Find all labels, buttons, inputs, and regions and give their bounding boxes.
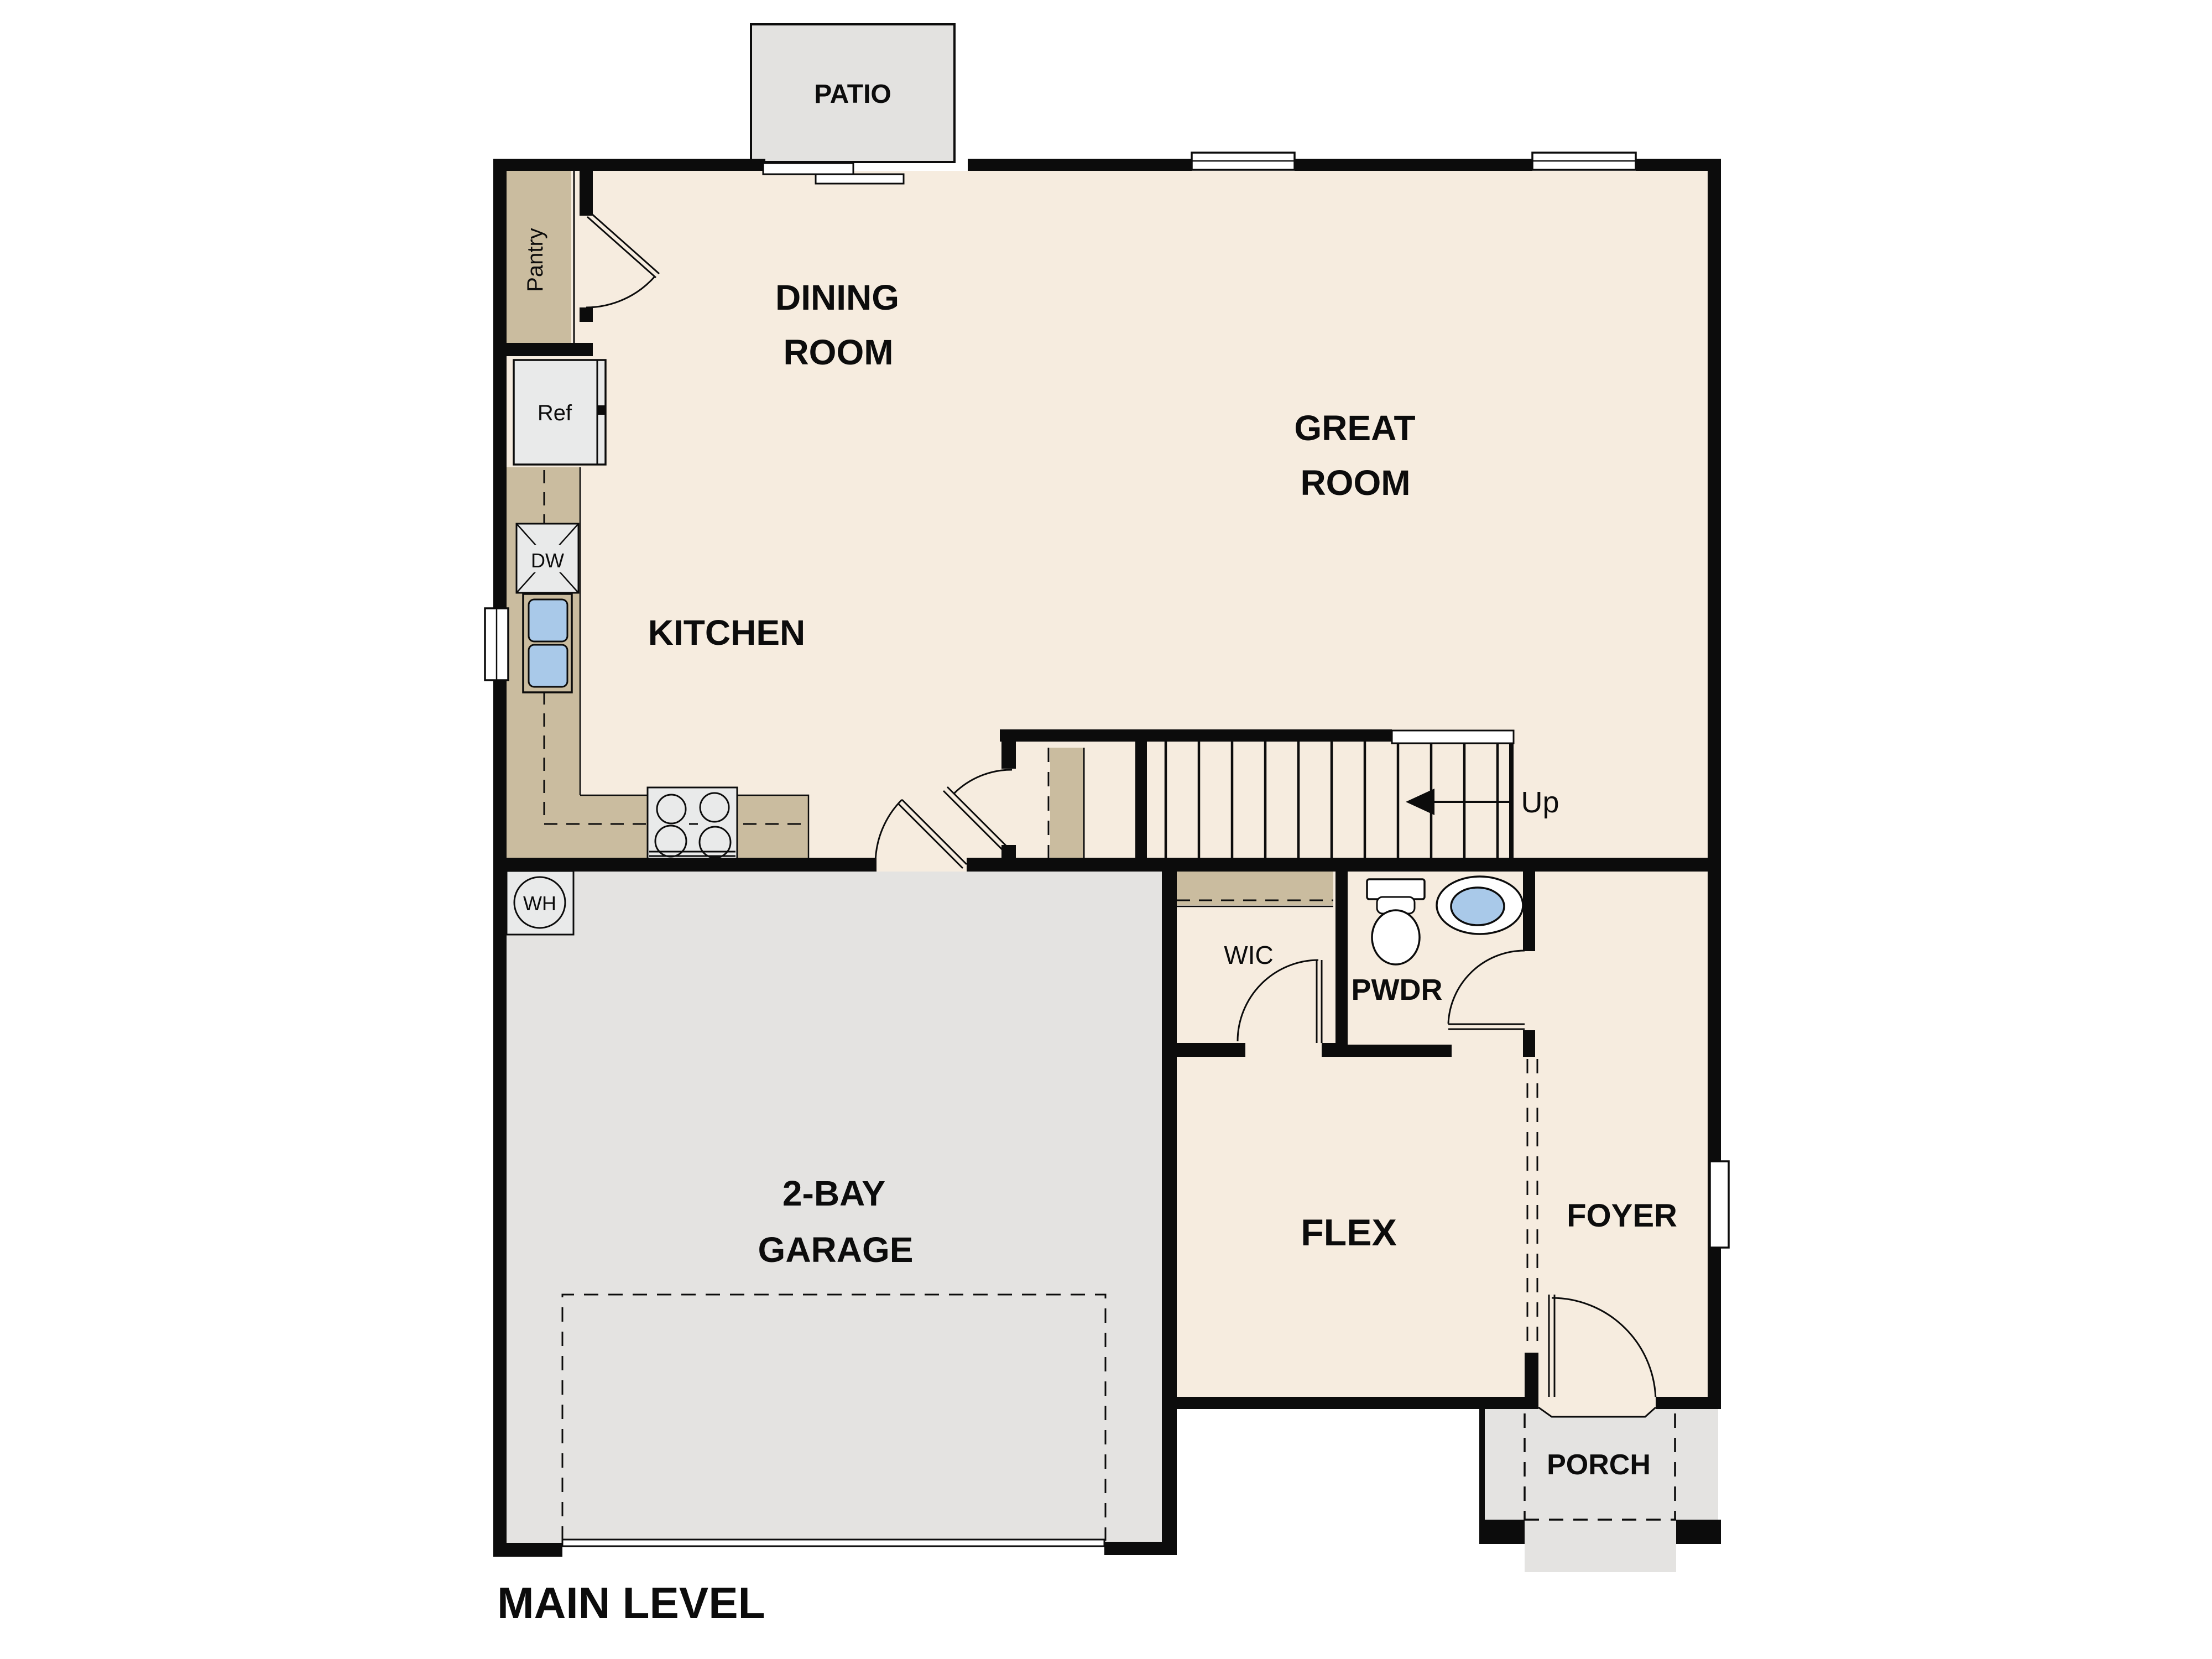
svg-text:2-BAY: 2-BAY bbox=[782, 1173, 885, 1213]
svg-text:WIC: WIC bbox=[1224, 941, 1273, 969]
svg-text:PATIO: PATIO bbox=[814, 80, 891, 109]
svg-text:GARAGE: GARAGE bbox=[758, 1230, 914, 1270]
svg-text:ROOM: ROOM bbox=[1300, 463, 1410, 503]
svg-text:WH: WH bbox=[523, 892, 556, 915]
svg-text:Ref: Ref bbox=[538, 401, 572, 425]
svg-text:KITCHEN: KITCHEN bbox=[648, 613, 805, 653]
svg-text:PWDR: PWDR bbox=[1352, 973, 1443, 1006]
svg-text:Up: Up bbox=[1521, 786, 1559, 819]
svg-text:MAIN LEVEL: MAIN LEVEL bbox=[497, 1578, 765, 1627]
svg-text:Pantry: Pantry bbox=[523, 228, 547, 292]
svg-text:FOYER: FOYER bbox=[1567, 1198, 1677, 1234]
svg-text:PORCH: PORCH bbox=[1547, 1449, 1651, 1481]
svg-text:ROOM: ROOM bbox=[783, 332, 893, 372]
svg-text:DW: DW bbox=[531, 549, 564, 572]
svg-text:DINING: DINING bbox=[775, 278, 899, 317]
svg-text:FLEX: FLEX bbox=[1301, 1212, 1397, 1254]
svg-text:GREAT: GREAT bbox=[1294, 408, 1415, 448]
